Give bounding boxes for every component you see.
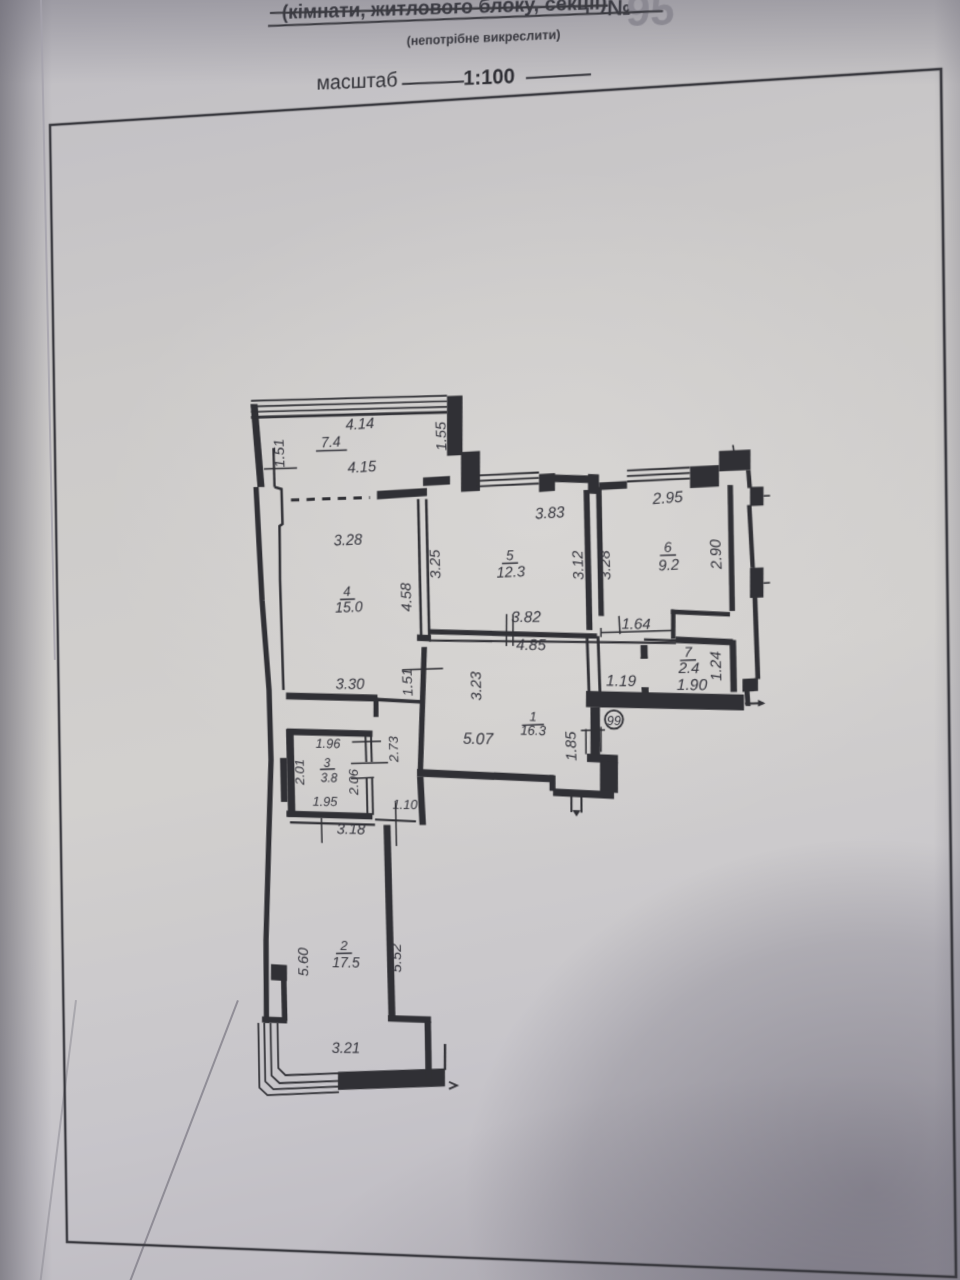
- svg-text:3.30: 3.30: [336, 676, 365, 693]
- svg-text:1.96: 1.96: [316, 736, 341, 751]
- svg-text:5.52: 5.52: [387, 943, 404, 972]
- svg-text:3.83: 3.83: [535, 504, 565, 523]
- svg-text:5: 5: [506, 547, 515, 564]
- svg-text:15.0: 15.0: [335, 598, 363, 616]
- svg-text:16.3: 16.3: [520, 723, 546, 739]
- svg-text:2: 2: [339, 937, 348, 953]
- svg-text:4.14: 4.14: [345, 415, 374, 434]
- svg-text:6: 6: [663, 539, 672, 556]
- svg-text:1.95: 1.95: [313, 794, 338, 809]
- svg-text:99: 99: [607, 713, 622, 728]
- svg-text:4.58: 4.58: [397, 582, 415, 612]
- svg-text:масштаб: масштаб: [317, 69, 398, 95]
- svg-text:9.2: 9.2: [658, 555, 680, 574]
- svg-text:17.5: 17.5: [332, 953, 360, 970]
- svg-text:1.24: 1.24: [706, 651, 724, 682]
- svg-text:3.28: 3.28: [596, 550, 614, 581]
- svg-text:1.19: 1.19: [606, 673, 636, 691]
- svg-text:2.95: 2.95: [651, 489, 684, 509]
- svg-text:3.18: 3.18: [337, 821, 366, 839]
- svg-text:1.85: 1.85: [562, 731, 580, 761]
- svg-text:3.12: 3.12: [569, 550, 587, 581]
- svg-text:3: 3: [324, 755, 331, 770]
- svg-text:3.28: 3.28: [333, 532, 362, 550]
- svg-text:2.06: 2.06: [346, 769, 361, 796]
- svg-text:2.73: 2.73: [386, 736, 401, 763]
- svg-text:4.85: 4.85: [516, 637, 547, 655]
- svg-text:3.23: 3.23: [467, 671, 484, 701]
- svg-text:3.25: 3.25: [426, 549, 444, 579]
- svg-text:4: 4: [343, 583, 351, 599]
- svg-text:1.55: 1.55: [432, 421, 450, 451]
- svg-text:2.90: 2.90: [706, 539, 725, 571]
- svg-text:1:100: 1:100: [463, 65, 515, 90]
- svg-text:7.4: 7.4: [321, 433, 342, 451]
- svg-text:95: 95: [626, 0, 676, 36]
- svg-text:(непотрібне викреслити): (непотрібне викреслити): [407, 27, 561, 49]
- svg-text:2.01: 2.01: [293, 759, 308, 786]
- svg-text:1.51: 1.51: [399, 668, 416, 697]
- svg-text:1.90: 1.90: [677, 677, 707, 695]
- svg-text:2.4: 2.4: [677, 659, 699, 677]
- svg-text:3.21: 3.21: [331, 1040, 360, 1057]
- svg-text:3.82: 3.82: [511, 609, 541, 626]
- svg-text:5.07: 5.07: [463, 731, 494, 749]
- svg-text:5.60: 5.60: [295, 947, 312, 976]
- svg-text:4.15: 4.15: [347, 458, 377, 477]
- svg-text:1.51: 1.51: [270, 438, 287, 468]
- svg-text:1.64: 1.64: [621, 615, 650, 633]
- svg-text:12.3: 12.3: [496, 562, 525, 581]
- svg-text:3.8: 3.8: [321, 770, 338, 785]
